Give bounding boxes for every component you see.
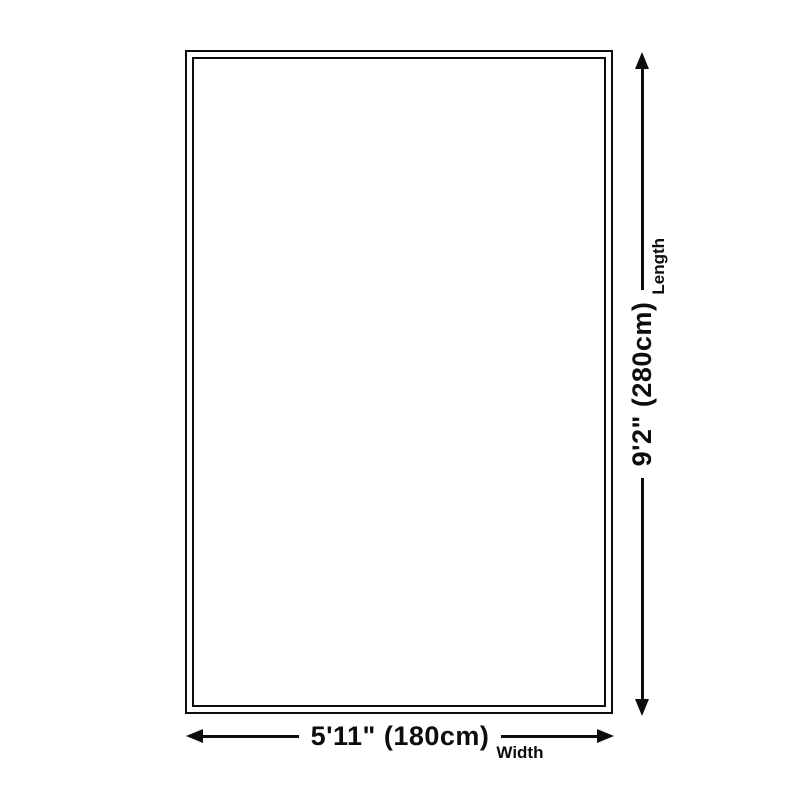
arrowhead-right-icon — [597, 729, 614, 743]
rug-inner-outline — [192, 57, 606, 707]
length-dimension-arrow: 9'2" (280cm) Length — [612, 52, 672, 716]
length-value: 9'2" (280cm) — [629, 302, 656, 467]
width-dimension-line-segment-1 — [203, 735, 299, 738]
arrowhead-down-icon — [635, 699, 649, 716]
rug-outer-outline — [185, 50, 613, 714]
width-label: Width — [496, 744, 543, 761]
length-dimension-line-segment-2 — [641, 69, 644, 290]
width-dimension-line-segment-2 — [501, 735, 597, 738]
arrowhead-left-icon — [186, 729, 203, 743]
length-dimension-line-segment-2-wrap: Length — [612, 69, 672, 290]
width-value: 5'11" (180cm) — [311, 723, 490, 750]
rug-dimension-diagram: 9'2" (280cm) Length 5'11" (180cm) Width — [0, 0, 800, 800]
length-label: Length — [650, 238, 667, 295]
length-dimension-line-segment-1 — [641, 478, 644, 699]
width-dimension-line-segment-2-wrap: Width — [501, 706, 597, 766]
width-dimension-arrow: 5'11" (180cm) Width — [186, 706, 614, 766]
arrowhead-up-icon — [635, 52, 649, 69]
